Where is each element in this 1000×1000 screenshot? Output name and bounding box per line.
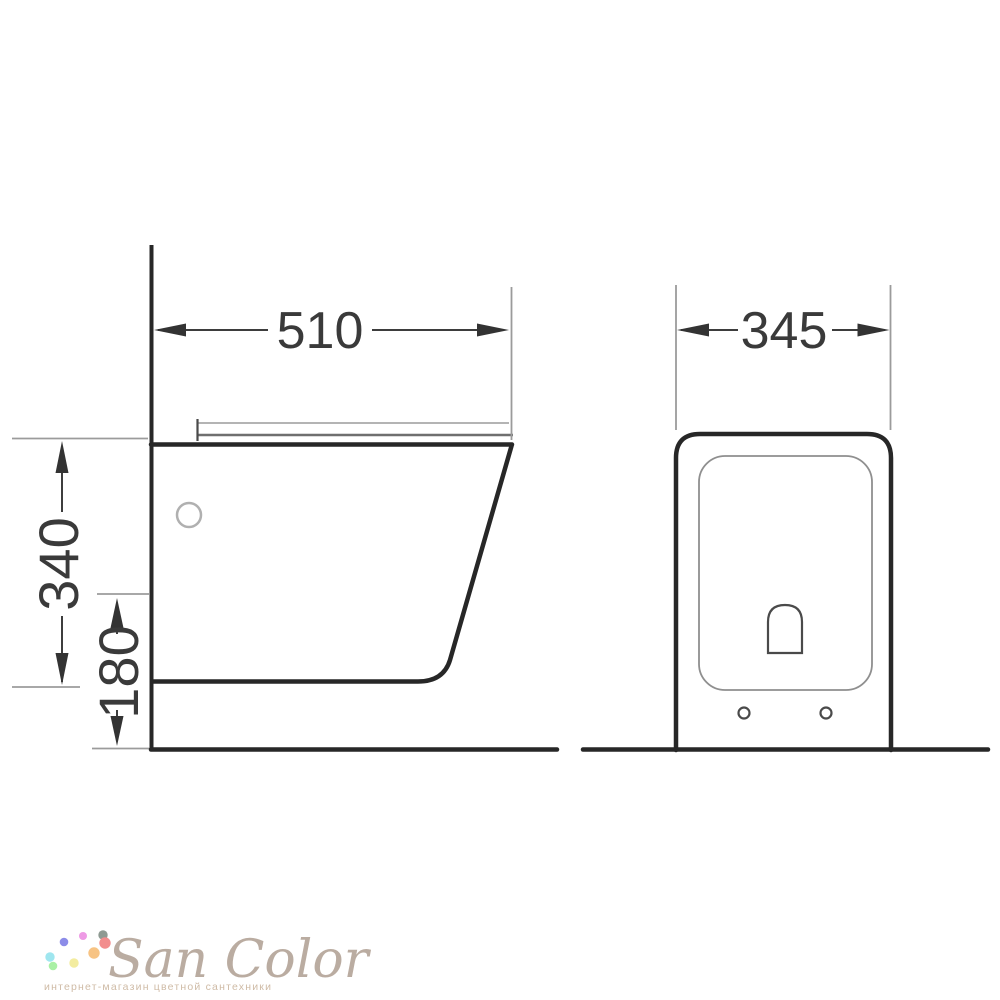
orange-dot-icon (88, 947, 99, 958)
drain-arch-icon (768, 605, 802, 653)
dim-180-arrow-down-icon (111, 716, 124, 746)
seat-opening-outline (699, 456, 872, 690)
dim-510-label: 510 (277, 302, 364, 360)
dimension-510: 510 (154, 287, 512, 440)
watermark-logo: San Color интернет-магазин цветной санте… (44, 930, 372, 993)
dim-340-label: 340 (27, 517, 90, 610)
dim-345-arrow-left-icon (677, 324, 709, 337)
front-body-outline (676, 434, 891, 750)
front-view (583, 434, 988, 750)
periwinkle-dot-icon (60, 938, 69, 947)
green-dot-icon (49, 962, 58, 971)
technical-drawing-page: 510 340 180 345 (0, 0, 1000, 1000)
dim-340-arrow-up-icon (56, 441, 69, 473)
toilet-dimension-diagram: 510 340 180 345 (0, 0, 1000, 1000)
mounting-hole-right-icon (821, 708, 832, 719)
dim-510-arrow-right-icon (477, 324, 509, 337)
dim-180-arrow-up-icon (111, 598, 124, 628)
mounting-hole-left-icon (739, 708, 750, 719)
dim-510-arrow-left-icon (154, 324, 186, 337)
orchid-dot-icon (79, 932, 87, 940)
dimension-180: 180 (87, 594, 150, 746)
yellow-dot-icon (69, 958, 78, 967)
dimension-345: 345 (676, 285, 891, 430)
watermark-tagline-text: интернет-магазин цветной сантехники (44, 981, 272, 993)
cyan-dot-icon (45, 952, 54, 961)
dim-340-arrow-down-icon (56, 653, 69, 685)
hinge-hole-icon (177, 503, 201, 527)
dim-345-label: 345 (741, 302, 828, 360)
dim-180-label: 180 (87, 625, 150, 718)
dim-345-arrow-right-icon (858, 324, 890, 337)
side-body-front-outline (152, 446, 512, 682)
